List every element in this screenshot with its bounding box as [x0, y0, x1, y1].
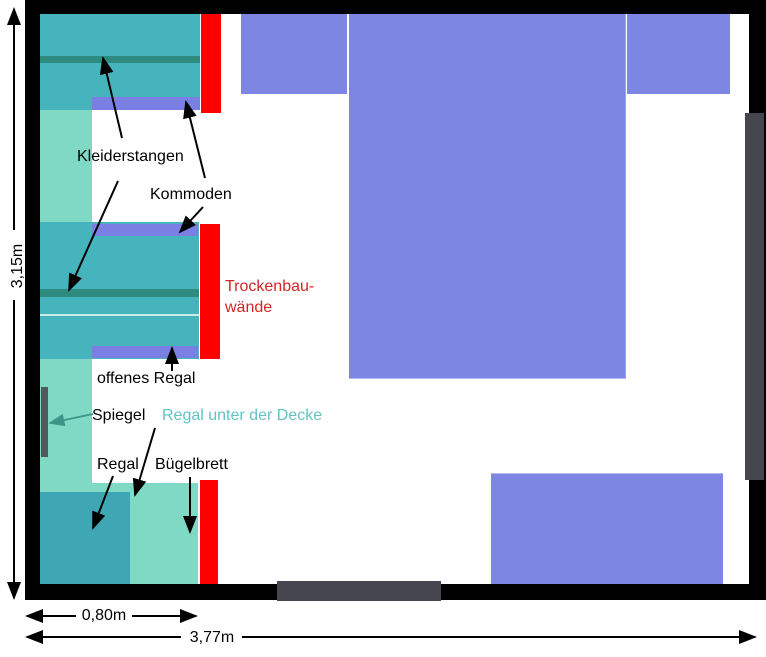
label-offenes-regal: offenes Regal — [97, 369, 195, 388]
drywall-partition-top — [201, 14, 221, 113]
drywall-partition-middle — [200, 224, 220, 359]
dimension-room-height: 3,15m — [8, 234, 24, 298]
clothes-rail-top — [40, 56, 200, 63]
dimension-room-width: 3,77m — [183, 628, 241, 647]
wall-opening-right — [745, 113, 764, 480]
furniture-block-top-right — [627, 14, 730, 94]
shelf-block-bottom — [40, 492, 130, 584]
mirror — [41, 387, 48, 457]
kommode-strip-middle — [92, 224, 198, 236]
arrow-kommoden-top — [186, 102, 205, 178]
label-trockenbauwaende: Trockenbau- wände — [225, 276, 314, 318]
label-spiegel: Spiegel — [92, 406, 145, 425]
furniture-block-bottom-right — [491, 473, 723, 585]
label-trockenbau-line1: Trockenbau- — [225, 276, 314, 297]
clothes-rail-middle — [40, 289, 199, 297]
label-kommoden: Kommoden — [150, 185, 232, 204]
label-trockenbau-line2: wände — [225, 297, 314, 318]
kommode-strip-top — [92, 97, 200, 110]
label-regal-unter-der-decke: Regal unter der Decke — [162, 406, 322, 425]
open-shelf-strip — [92, 346, 198, 358]
label-kleiderstangen: Kleiderstangen — [77, 147, 184, 166]
furniture-block-center — [349, 14, 626, 379]
dimension-closet-depth: 0,80m — [76, 606, 132, 625]
wall-top — [25, 0, 766, 14]
ceiling-shelf-strip-upper — [40, 110, 92, 222]
shelf-divider-line — [40, 314, 199, 316]
furniture-block-top-left — [241, 14, 347, 94]
wall-left — [25, 0, 40, 600]
label-regal: Regal — [97, 455, 139, 474]
label-buegelbrett: Bügelbrett — [155, 455, 228, 474]
drywall-partition-bottom — [200, 480, 218, 584]
floor-plan: Kleiderstangen Kommoden Trockenbau- wänd… — [0, 0, 766, 657]
wall-opening-bottom — [277, 581, 441, 601]
